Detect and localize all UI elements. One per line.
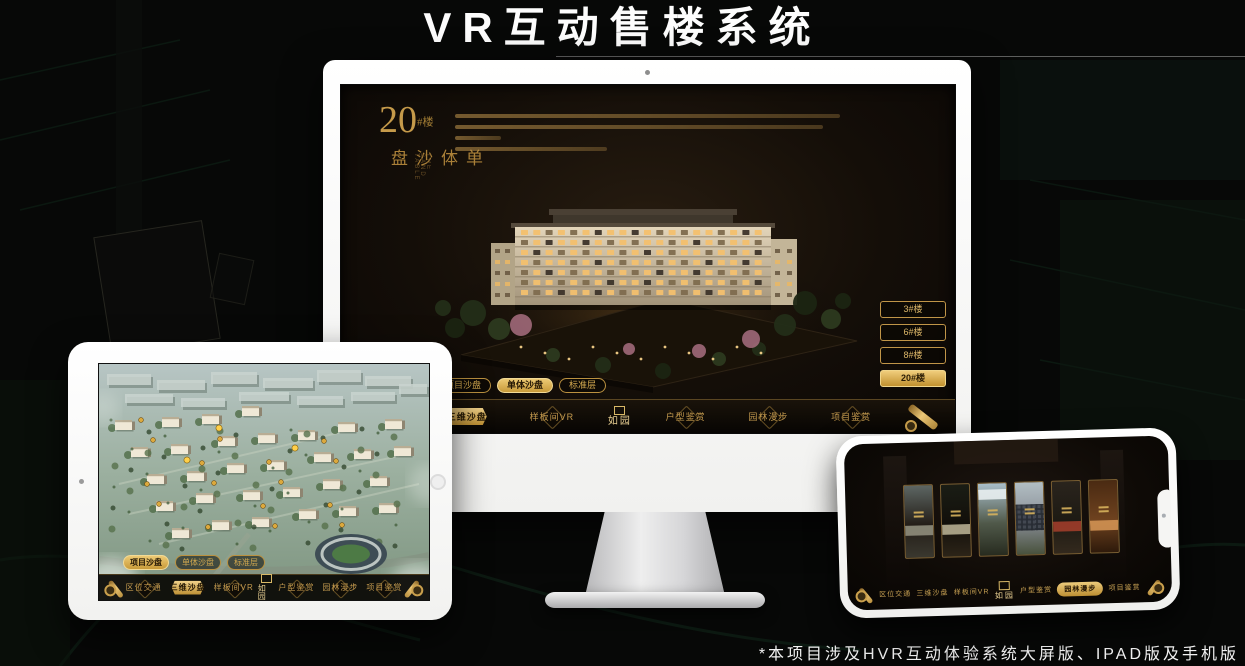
scroll-icon[interactable]: [854, 585, 875, 604]
nav-item-garden-walk[interactable]: 园林漫步: [739, 405, 797, 428]
poster-canvas: VR互动售楼系统 20#楼 单体沙盘 THE SAND TABLE: [0, 0, 1245, 666]
single-building-3d-render[interactable]: [403, 143, 883, 393]
building-title-block: 20#楼 单体沙盘 THE SAND TABLE: [379, 101, 434, 139]
nav-item-garden-walk[interactable]: 园林漫步: [318, 579, 362, 596]
building-number: 20: [379, 99, 417, 141]
nav-item-label: 项目鉴赏: [831, 412, 871, 422]
nav-item-floorplans[interactable]: 户型鉴赏: [657, 405, 715, 428]
ipad-bottom-nav: 区位交通 三维沙盘 样板间VR 如园 户型鉴赏 园林漫步 项目鉴赏: [99, 574, 429, 600]
footnote-text: *本项目涉及HVR互动体验系统大屏版、IPAD版及手机版: [759, 640, 1239, 664]
panel-accent: [1090, 520, 1118, 531]
scroll-icon[interactable]: [1144, 576, 1166, 596]
tab-standard-floor[interactable]: 标准层: [559, 378, 606, 393]
sandbox-tab-row: 项目沙盘 单体沙盘 标准层: [435, 378, 606, 393]
logo-emblem-icon: [614, 406, 625, 415]
gallery-panel-windows[interactable]: [1014, 481, 1046, 556]
ipad-camera-icon: [79, 479, 84, 484]
building-button-8[interactable]: 8#楼: [880, 347, 946, 364]
tab-single-building[interactable]: 单体沙盘: [175, 555, 221, 570]
gallery-panel-shelves[interactable]: [1088, 479, 1120, 554]
phone-screen: 区位交通 三维沙盘 样板间VR 如园 户型鉴赏 园林漫步 项目鉴赏: [844, 436, 1173, 611]
scroll-icon[interactable]: [404, 577, 424, 598]
nav-item-label: 三维沙盘: [170, 583, 206, 592]
nav-item-label: 园林漫步: [322, 583, 358, 592]
background-picture-frame: [93, 220, 220, 356]
ipad-home-button[interactable]: [430, 474, 446, 490]
title-underline: [556, 56, 1245, 57]
panel-accent: [1053, 521, 1081, 532]
gallery-panel-lantern[interactable]: [1051, 480, 1083, 555]
nav-item-label: 户型鉴赏: [666, 412, 706, 422]
nav-item-label: 项目鉴赏: [366, 583, 402, 592]
nav-item-location[interactable]: 区位交通: [122, 579, 166, 596]
webcam-dot-icon: [645, 70, 650, 75]
panel-label-marks: [1062, 507, 1072, 509]
ruyuan-logo: 如园: [258, 574, 275, 601]
monitor-stand-neck: [585, 512, 725, 596]
panel-accent: [978, 489, 1006, 500]
nav-item-label: 样板间VR: [530, 412, 575, 422]
nav-item-label: 样板间VR: [214, 583, 254, 592]
panel-label-marks: [988, 509, 998, 511]
scroll-icon[interactable]: [905, 402, 941, 432]
building-number-suffix: #楼: [417, 117, 434, 129]
scroll-icon[interactable]: [103, 577, 123, 598]
background-gate-beam: [954, 439, 1058, 465]
ipad-mockup: 项目沙盘 单体沙盘 标准层 区位交通 三维沙盘 样板间VR 如园 户型鉴赏 园林…: [68, 342, 452, 620]
panel-accent: [905, 525, 933, 536]
smartphone-mockup: 区位交通 三维沙盘 样板间VR 如园 户型鉴赏 园林漫步 项目鉴赏: [836, 427, 1181, 618]
gallery-panel-row: [903, 479, 1120, 559]
panel-label-marks: [951, 510, 961, 512]
logo-emblem-icon: [261, 574, 272, 583]
nav-item-showroom-vr[interactable]: 样板间VR: [954, 586, 990, 597]
nav-item-garden-walk[interactable]: 园林漫步: [1057, 581, 1103, 596]
nav-item-3d-sandbox[interactable]: 三维沙盘: [916, 587, 948, 598]
nav-item-project-gallery[interactable]: 项目鉴赏: [822, 405, 880, 428]
building-button-20[interactable]: 20#楼: [880, 370, 946, 387]
gallery-panel-sky[interactable]: [977, 482, 1009, 557]
building-selector: 3#楼 6#楼 8#楼 20#楼: [879, 295, 947, 393]
phone-notch: [1157, 489, 1172, 547]
nav-item-location[interactable]: 区位交通: [879, 588, 911, 599]
nav-item-label: 户型鉴赏: [278, 583, 314, 592]
nav-item-3d-sandbox[interactable]: 三维沙盘: [166, 579, 210, 596]
tab-project-sandbox[interactable]: 项目沙盘: [123, 555, 169, 570]
nav-item-label: 园林漫步: [748, 412, 788, 422]
nav-item-project-gallery[interactable]: 项目鉴赏: [1108, 582, 1140, 593]
nav-item-project-gallery[interactable]: 项目鉴赏: [362, 579, 406, 596]
ruyuan-logo: 如园: [994, 581, 1015, 601]
page-title: VR互动售楼系统: [0, 0, 1245, 56]
tab-single-building[interactable]: 单体沙盘: [497, 378, 553, 393]
monitor-stand-base: [545, 592, 765, 608]
panel-label-marks: [914, 511, 924, 513]
nav-item-showroom-vr[interactable]: 样板间VR: [210, 579, 258, 596]
phone-camera-icon: [1162, 514, 1166, 518]
sandbox-tab-row: 项目沙盘 单体沙盘 标准层: [123, 555, 265, 570]
building-button-3[interactable]: 3#楼: [880, 301, 946, 318]
panel-label-marks: [1025, 508, 1035, 510]
nav-item-floorplans[interactable]: 户型鉴赏: [274, 579, 318, 596]
nav-item-showroom-vr[interactable]: 样板间VR: [521, 405, 584, 428]
nav-item-floorplans[interactable]: 户型鉴赏: [1020, 584, 1052, 595]
logo-emblem-icon: [999, 581, 1010, 590]
panel-label-marks: [1099, 506, 1109, 508]
gallery-panel-band[interactable]: [940, 483, 972, 558]
ruyuan-logo: 如园: [608, 406, 632, 427]
panel-accent: [942, 524, 970, 535]
building-button-6[interactable]: 6#楼: [880, 324, 946, 341]
nav-item-label: 三维沙盘: [447, 412, 487, 422]
nav-item-label: 区位交通: [126, 583, 162, 592]
tab-standard-floor[interactable]: 标准层: [227, 555, 265, 570]
ipad-screen: 项目沙盘 单体沙盘 标准层 区位交通 三维沙盘 样板间VR 如园 户型鉴赏 园林…: [98, 363, 430, 601]
gallery-panel-arch[interactable]: [903, 484, 935, 559]
